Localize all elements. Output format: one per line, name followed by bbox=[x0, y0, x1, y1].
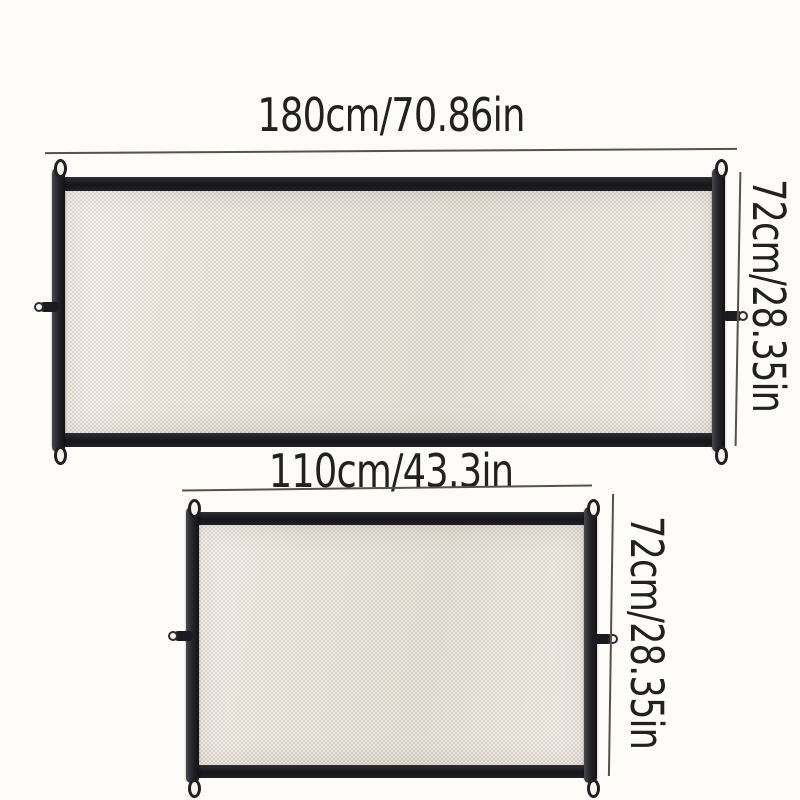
frame-top-bar bbox=[191, 512, 592, 525]
mesh-panel bbox=[64, 189, 713, 435]
height-label-small: 72cm/28.35in bbox=[624, 516, 669, 749]
mesh-gate-large bbox=[49, 159, 741, 459]
width-label-large: 180cm/70.86in bbox=[114, 92, 668, 138]
side-hook-left-icon bbox=[39, 302, 59, 312]
corner-loop-icon bbox=[715, 159, 728, 178]
frame-bottom-bar bbox=[191, 765, 592, 778]
corner-loop-icon bbox=[54, 446, 67, 465]
corner-loop-icon bbox=[587, 779, 600, 798]
side-hook-right-icon bbox=[723, 311, 743, 321]
mesh-gate-small bbox=[183, 500, 600, 792]
mesh-panel bbox=[197, 524, 586, 768]
frame-top-bar bbox=[57, 177, 719, 191]
corner-loop-icon bbox=[587, 499, 600, 518]
frame-pole-right bbox=[712, 168, 725, 452]
width-dimension-line-large bbox=[45, 148, 737, 154]
height-label-large: 72cm/28.35in bbox=[746, 179, 791, 412]
size-diagram: 180cm/70.86in 72cm/28.35in 110cm/43.3in … bbox=[0, 0, 800, 800]
corner-loop-icon bbox=[188, 779, 201, 798]
frame-pole-right bbox=[584, 507, 597, 783]
corner-loop-icon bbox=[54, 159, 67, 178]
corner-loop-icon bbox=[715, 446, 728, 465]
side-hook-left-icon bbox=[173, 631, 193, 641]
frame-pole-left bbox=[186, 507, 199, 783]
corner-loop-icon bbox=[188, 499, 201, 518]
